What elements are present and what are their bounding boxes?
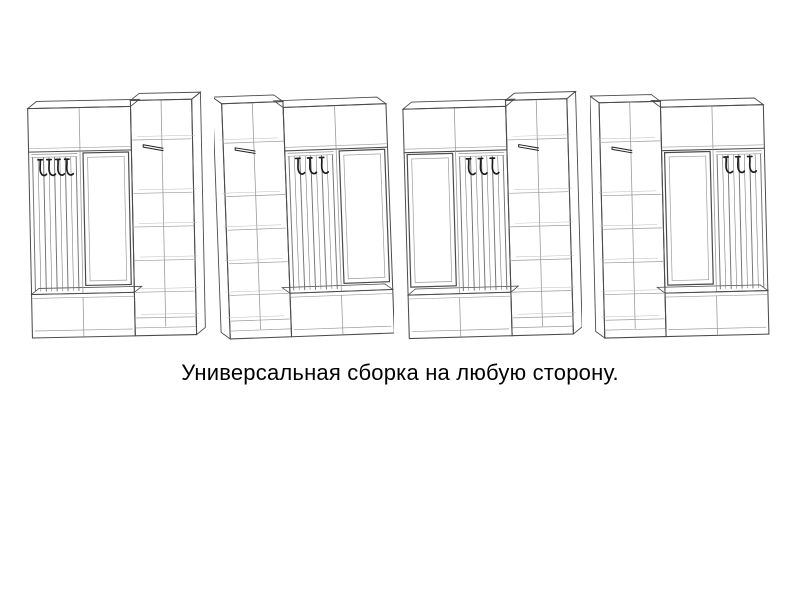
page: Универсальная сборка на любую сторону. [0, 0, 800, 600]
wardrobe-variant-4 [590, 88, 770, 348]
unit-wireframe [214, 91, 394, 339]
wardrobe-variant-1 [26, 88, 206, 348]
unit-wireframe [403, 92, 582, 339]
furniture-variants-row [26, 88, 770, 348]
caption: Универсальная сборка на любую сторону. [0, 360, 800, 386]
unit-wireframe [27, 92, 205, 338]
wardrobe-wireframe-drawing-1 [26, 88, 206, 348]
wardrobe-variant-3 [402, 88, 582, 348]
wardrobe-wireframe-drawing-3 [402, 88, 582, 348]
wardrobe-variant-2 [214, 88, 394, 348]
unit-wireframe [590, 92, 769, 338]
wardrobe-wireframe-drawing-4 [590, 88, 770, 348]
wardrobe-wireframe-drawing-2 [214, 88, 394, 348]
